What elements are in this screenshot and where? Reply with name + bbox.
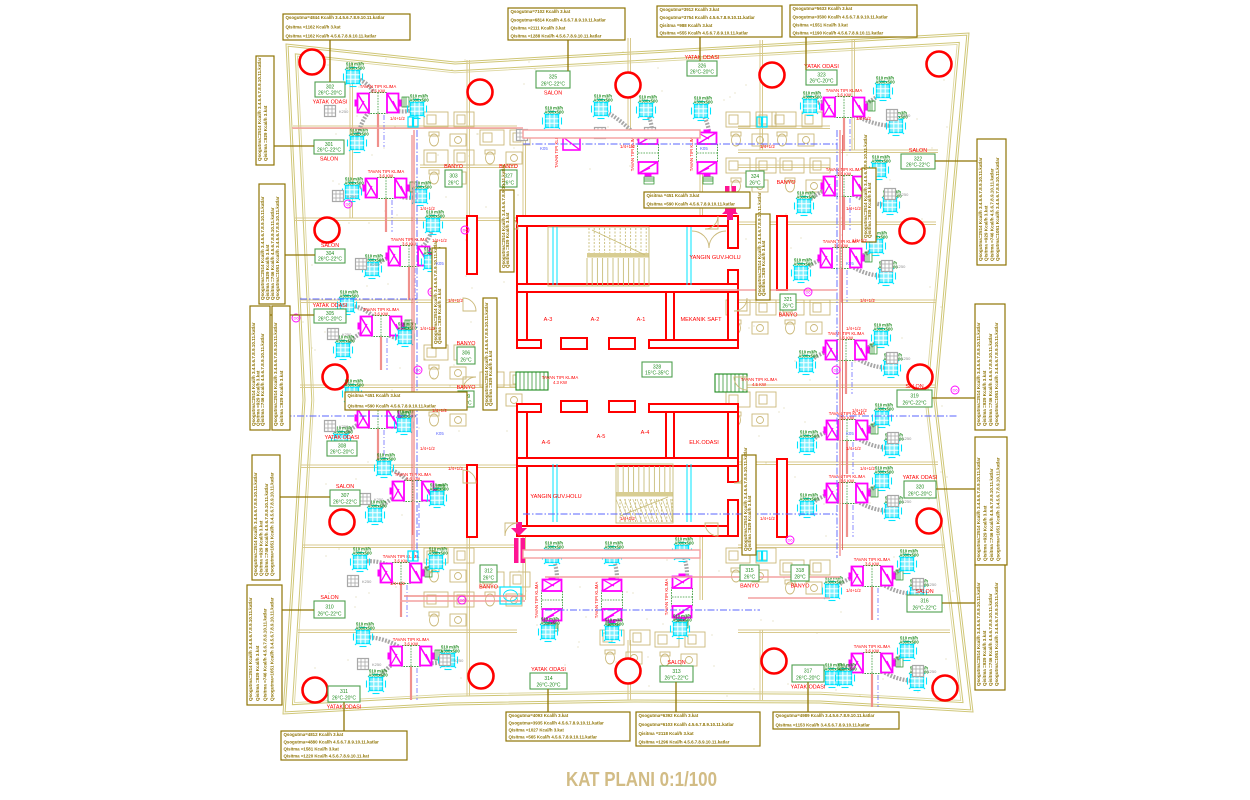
svg-text:1/4+1/2: 1/4+1/2 xyxy=(860,298,875,303)
svg-text:YATAK ODASI: YATAK ODASI xyxy=(804,64,839,70)
svg-text:A500x500: A500x500 xyxy=(344,383,364,388)
svg-text:26°C-20°C: 26°C-20°C xyxy=(908,492,932,498)
svg-text:1/4+1/2: 1/4+1/2 xyxy=(390,116,405,121)
svg-text:YATAK ODASI: YATAK ODASI xyxy=(325,435,360,441)
svg-text:TAVAN TIPI KLIMA: TAVAN TIPI KLIMA xyxy=(630,135,635,172)
svg-text:YATAK ODASI: YATAK ODASI xyxy=(313,303,348,309)
svg-text:SALON: SALON xyxy=(909,148,927,154)
svg-text:A-2: A-2 xyxy=(591,317,600,323)
svg-text:A-3: A-3 xyxy=(544,317,553,323)
svg-text:K05: K05 xyxy=(436,431,444,436)
svg-text:SALON: SALON xyxy=(915,589,933,595)
svg-text:Qisitma =929 Kcal/h 3.kat: Qisitma =929 Kcal/h 3.kat xyxy=(279,370,284,426)
svg-text:Qisitma =929 Kcal/h 3.kat: Qisitma =929 Kcal/h 3.kat xyxy=(761,240,766,296)
svg-text:K250: K250 xyxy=(339,109,349,114)
svg-text:1/4+1/2: 1/4+1/2 xyxy=(852,238,867,243)
svg-text:1/4+1/2: 1/4+1/2 xyxy=(432,408,447,413)
svg-text:Qsogutma=7102 Kcal/h 3.kat: Qsogutma=7102 Kcal/h 3.kat xyxy=(511,9,571,14)
svg-text:K250: K250 xyxy=(454,658,464,663)
svg-text:Qsogutma=2514 Kcal/h 3.4.5.6.7: Qsogutma=2514 Kcal/h 3.4.5.6.7.8.9.10.11… xyxy=(273,322,278,426)
svg-text:317: 317 xyxy=(804,668,813,674)
svg-text:Qisitma =746 Kcal/h 4.5.6.7.8.: Qisitma =746 Kcal/h 4.5.6.7.8.9.10.11.ka… xyxy=(989,168,994,261)
svg-text:K05: K05 xyxy=(436,261,444,266)
svg-text:Qsogutma=3500 Kcal/h 4.5.6.7.8: Qsogutma=3500 Kcal/h 4.5.6.7.8.9.10.11.k… xyxy=(793,14,889,19)
svg-text:307: 307 xyxy=(341,493,350,499)
svg-text:A500x500: A500x500 xyxy=(796,195,816,200)
svg-text:YATAK ODASI: YATAK ODASI xyxy=(685,55,720,61)
svg-text:1/4+1/2: 1/4+1/2 xyxy=(390,581,405,586)
svg-text:K250: K250 xyxy=(927,669,937,674)
svg-text:323: 323 xyxy=(817,72,826,78)
svg-text:26°C-20°C: 26°C-20°C xyxy=(690,70,714,76)
svg-text:K250: K250 xyxy=(362,579,372,584)
svg-text:4.5 KW: 4.5 KW xyxy=(752,382,767,387)
svg-text:Qsogutma=1051 Kcal/h 3.4.5.6.7: Qsogutma=1051 Kcal/h 3.4.5.6.7.8.9.10.11… xyxy=(995,157,1000,261)
svg-text:326: 326 xyxy=(698,63,707,69)
svg-text:K250: K250 xyxy=(374,497,384,502)
svg-text:Qsogutma=1051 Kcal/h 3.4.5.6.7: Qsogutma=1051 Kcal/h 3.4.5.6.7.8.9.10.11… xyxy=(995,457,1000,561)
svg-text:1/4+1/2: 1/4+1/2 xyxy=(860,466,875,471)
svg-text:Qisitma =1296 Kcal/h 4.5.6.7.8: Qisitma =1296 Kcal/h 4.5.6.7.8.9.10.11.k… xyxy=(639,740,730,745)
svg-text:26°C: 26°C xyxy=(749,181,761,187)
svg-text:Qsogutma=6392 Kcal/h 3.kat: Qsogutma=6392 Kcal/h 3.kat xyxy=(639,713,699,718)
svg-text:TAVAN TIPI KLIMA: TAVAN TIPI KLIMA xyxy=(534,582,539,619)
svg-text:A500x500: A500x500 xyxy=(875,80,895,85)
svg-text:Qisitma =929 Kcal/h 3.kat: Qisitma =929 Kcal/h 3.kat xyxy=(437,288,442,344)
svg-text:26°C-20°C: 26°C-20°C xyxy=(796,676,820,682)
svg-text:D6: D6 xyxy=(462,228,468,233)
svg-text:D6: D6 xyxy=(415,368,421,373)
svg-text:SALON: SALON xyxy=(667,660,685,666)
svg-text:A500x500: A500x500 xyxy=(412,185,432,190)
svg-text:26°C-20°C: 26°C-20°C xyxy=(330,450,354,456)
svg-text:306: 306 xyxy=(462,350,471,356)
svg-text:Qsogutma=3935 Kcal/h 4.5.6.7.8: Qsogutma=3935 Kcal/h 4.5.6.7.8.9.10.11.k… xyxy=(509,720,605,725)
svg-text:26°C-22°C: 26°C-22°C xyxy=(318,257,342,263)
svg-text:BANYO: BANYO xyxy=(777,180,796,186)
svg-text:Qsogutma=2514 Kcal/h 3.4.5.6.7: Qsogutma=2514 Kcal/h 3.4.5.6.7.8.9.10.11… xyxy=(978,157,983,261)
svg-text:1/4+1/2: 1/4+1/2 xyxy=(420,206,435,211)
svg-text:ELK.ODASI: ELK.ODASI xyxy=(689,440,719,446)
svg-text:A500x500: A500x500 xyxy=(376,457,396,462)
svg-text:A500x500: A500x500 xyxy=(339,294,359,299)
svg-text:28°C: 28°C xyxy=(794,575,806,581)
svg-text:K250: K250 xyxy=(370,262,380,267)
svg-text:A500x500: A500x500 xyxy=(874,407,894,412)
svg-text:A500x500: A500x500 xyxy=(368,673,388,678)
svg-text:316: 316 xyxy=(920,598,929,604)
svg-text:Qsogutma=3912 Kcal/h 3.kat: Qsogutma=3912 Kcal/h 3.kat xyxy=(660,7,720,12)
svg-text:Qisitma =746 Kcal/h 4.5.6.7.8.: Qisitma =746 Kcal/h 4.5.6.7.8.9.10.11.ka… xyxy=(988,593,993,686)
svg-text:K250: K250 xyxy=(927,582,937,587)
svg-text:3.6 KW: 3.6 KW xyxy=(404,642,419,647)
svg-text:BANYO: BANYO xyxy=(444,164,463,170)
svg-text:Qisitma =746 Kcal/h 4.5.6.7.8.: Qisitma =746 Kcal/h 4.5.6.7.8.9.10.11.ka… xyxy=(260,333,265,426)
svg-text:Qisitma =1162 Kcal/h 4.5.6.7.8: Qisitma =1162 Kcal/h 4.5.6.7.8.9.10.11.k… xyxy=(286,34,377,39)
svg-text:Qsogutma=1051 Kcal/h 3.4.5.6.7: Qsogutma=1051 Kcal/h 3.4.5.6.7.8.9.10.11… xyxy=(994,322,999,426)
svg-text:K05: K05 xyxy=(846,431,854,436)
svg-text:319: 319 xyxy=(910,393,919,399)
svg-text:1/4+1/2: 1/4+1/2 xyxy=(620,516,635,521)
svg-text:1/4+1/2: 1/4+1/2 xyxy=(448,298,463,303)
svg-text:TAVAN TIPI KLIMA: TAVAN TIPI KLIMA xyxy=(689,135,694,172)
svg-text:Qsogutma=2514 Kcal/h 3.4.5.6.7: Qsogutma=2514 Kcal/h 3.4.5.6.7.8.9.10.11… xyxy=(976,582,981,686)
svg-text:Qsogutma=1051 Kcal/h 3.4.5.6.7: Qsogutma=1051 Kcal/h 3.4.5.6.7.8.9.10.11… xyxy=(270,597,275,701)
svg-text:A500x500: A500x500 xyxy=(899,553,919,558)
svg-text:Qsogutma=4880 Kcal/h 4.5.6.7.8: Qsogutma=4880 Kcal/h 4.5.6.7.8.9.10.11.k… xyxy=(284,739,380,744)
svg-text:Qisitma =2111 Kcal/h 3.kat: Qisitma =2111 Kcal/h 3.kat xyxy=(511,26,566,31)
svg-text:Qsogutma=2514 Kcal/h 3.4.5.6.7: Qsogutma=2514 Kcal/h 3.4.5.6.7.8.9.10.11… xyxy=(253,472,258,576)
svg-text:328: 328 xyxy=(653,364,662,370)
svg-text:3.6 KW: 3.6 KW xyxy=(837,93,852,98)
svg-text:Qisitma =451 Kcal/h 3.kat: Qisitma =451 Kcal/h 3.kat xyxy=(647,193,700,198)
svg-text:D6: D6 xyxy=(952,388,958,393)
svg-text:A500x500: A500x500 xyxy=(409,98,429,103)
svg-text:Qisitma =1162 Kcal/h 3.kat: Qisitma =1162 Kcal/h 3.kat xyxy=(286,24,342,29)
svg-text:A500x500: A500x500 xyxy=(352,551,372,556)
svg-text:Qisitma =929 Kcal/h 3.kat: Qisitma =929 Kcal/h 3.kat xyxy=(747,495,752,551)
svg-text:SALON: SALON xyxy=(320,595,338,601)
svg-text:A-5: A-5 xyxy=(597,434,606,440)
svg-text:3.6 KW: 3.6 KW xyxy=(374,312,389,317)
svg-text:A500x500: A500x500 xyxy=(802,95,822,100)
svg-text:SALON: SALON xyxy=(321,243,339,249)
svg-text:BANYO: BANYO xyxy=(779,313,798,319)
svg-text:3.6 KW: 3.6 KW xyxy=(839,336,854,341)
svg-text:D6: D6 xyxy=(345,202,351,207)
svg-text:Qisitma =2118 Kcal/h 3.kat: Qisitma =2118 Kcal/h 3.kat xyxy=(639,731,695,736)
svg-text:K250: K250 xyxy=(896,264,906,269)
svg-text:Qsogutma=2514 Kcal/h 3.4.5.6.7: Qsogutma=2514 Kcal/h 3.4.5.6.7.8.9.10.11… xyxy=(248,597,253,701)
svg-text:26°C-22°C: 26°C-22°C xyxy=(541,82,565,88)
svg-text:1/4+1/2: 1/4+1/2 xyxy=(846,446,861,451)
svg-text:A500x500: A500x500 xyxy=(638,99,658,104)
svg-text:Qisitma =746 Kcal/h 4.5.6.7.8.: Qisitma =746 Kcal/h 4.5.6.7.8.9.10.11.ka… xyxy=(988,333,993,426)
svg-text:Qisitma =929 Kcal/h 3.kat: Qisitma =929 Kcal/h 3.kat xyxy=(982,630,987,686)
svg-text:Qisitma =929 Kcal/h 3.kat: Qisitma =929 Kcal/h 3.kat xyxy=(263,105,268,161)
svg-text:26°C-20°C: 26°C-20°C xyxy=(332,696,356,702)
svg-text:310: 310 xyxy=(325,604,334,610)
svg-text:K250: K250 xyxy=(342,332,352,337)
svg-text:313: 313 xyxy=(672,669,681,675)
svg-text:BANYO: BANYO xyxy=(457,385,476,391)
svg-text:A500x500: A500x500 xyxy=(674,541,694,546)
svg-text:K05: K05 xyxy=(700,146,708,151)
svg-text:SALON: SALON xyxy=(320,157,338,163)
svg-text:26°C-20°C: 26°C-20°C xyxy=(536,683,560,689)
svg-text:A500x500: A500x500 xyxy=(693,100,713,105)
svg-text:Qisitma =929 Kcal/h 3.kat: Qisitma =929 Kcal/h 3.kat xyxy=(984,205,989,261)
svg-text:1/4+1/2: 1/4+1/2 xyxy=(448,466,463,471)
svg-text:1/4+1/2: 1/4+1/2 xyxy=(620,144,635,149)
svg-text:321: 321 xyxy=(784,297,793,303)
svg-text:303: 303 xyxy=(449,173,458,179)
svg-text:D6: D6 xyxy=(293,316,299,321)
svg-text:322: 322 xyxy=(914,156,923,162)
svg-text:BANYO: BANYO xyxy=(479,585,498,591)
svg-text:A500x500: A500x500 xyxy=(345,66,365,71)
svg-text:3.6 KW: 3.6 KW xyxy=(379,174,394,179)
svg-text:3.6 KW: 3.6 KW xyxy=(394,559,409,564)
svg-text:3.6 KW: 3.6 KW xyxy=(834,244,849,249)
svg-text:Qisitma =451 Kcal/h 3.kat: Qisitma =451 Kcal/h 3.kat xyxy=(348,393,401,398)
svg-text:A500x500: A500x500 xyxy=(593,98,613,103)
svg-text:A500x500: A500x500 xyxy=(874,470,894,475)
svg-text:1/4+1/2: 1/4+1/2 xyxy=(760,144,775,149)
svg-text:Qsogutma=4844 Kcal/h 3.4.5.6.7: Qsogutma=4844 Kcal/h 3.4.5.6.7.8.9.10.11… xyxy=(286,15,385,20)
svg-text:Qisitma =988 Kcal/h 3.kat: Qisitma =988 Kcal/h 3.kat xyxy=(660,23,713,28)
svg-text:A500x500: A500x500 xyxy=(871,159,891,164)
svg-text:26°C-20°C: 26°C-20°C xyxy=(318,91,342,97)
svg-text:1/4+1/2: 1/4+1/2 xyxy=(852,408,867,413)
svg-text:311: 311 xyxy=(340,689,348,695)
svg-text:Qsogutma=2514 Kcal/h 3.4.5.6.7: Qsogutma=2514 Kcal/h 3.4.5.6.7.8.9.10.11… xyxy=(257,57,262,161)
svg-text:BANYO: BANYO xyxy=(740,584,759,590)
svg-text:Qisitma =929 Kcal/h 3.kat: Qisitma =929 Kcal/h 3.kat xyxy=(488,350,493,406)
svg-text:318: 318 xyxy=(796,568,805,574)
svg-text:Qsogutma=5633 Kcal/h 3.kat: Qsogutma=5633 Kcal/h 3.kat xyxy=(793,6,853,11)
svg-text:YANGIN GUV.HOLU: YANGIN GUV.HOLU xyxy=(530,494,581,500)
svg-text:Qsogutma=1051 Kcal/h 3.4.5.6.7: Qsogutma=1051 Kcal/h 3.4.5.6.7.8.9.10.11… xyxy=(269,472,274,576)
svg-text:A500x500: A500x500 xyxy=(544,545,564,550)
svg-text:26°C: 26°C xyxy=(448,181,460,187)
svg-text:1/4+1/2: 1/4+1/2 xyxy=(420,446,435,451)
svg-text:A500x500: A500x500 xyxy=(798,354,818,359)
svg-text:K250: K250 xyxy=(899,192,909,197)
svg-text:26°C-20°C: 26°C-20°C xyxy=(318,317,342,323)
svg-text:TAVAN TIPI KLIMA: TAVAN TIPI KLIMA xyxy=(594,582,599,619)
svg-text:BANYO: BANYO xyxy=(457,341,476,347)
svg-text:26°C-22°C: 26°C-22°C xyxy=(902,401,926,407)
svg-text:26°C-22°C: 26°C-22°C xyxy=(317,148,341,154)
svg-text:Qsogutma=6103 Kcal/h 4.5.6.7.8: Qsogutma=6103 Kcal/h 4.5.6.7.8.9.10.11.k… xyxy=(639,722,735,727)
svg-text:Qisitma =929 Kcal/h 3.kat: Qisitma =929 Kcal/h 3.kat xyxy=(982,370,987,426)
svg-text:1/4+1/2: 1/4+1/2 xyxy=(846,206,861,211)
svg-text:Qisitma =1027 Kcal/h 3.kat: Qisitma =1027 Kcal/h 3.kat xyxy=(509,728,565,733)
svg-text:Qsogutma=4093 Kcal/h 3.kat: Qsogutma=4093 Kcal/h 3.kat xyxy=(509,713,569,718)
svg-text:D6: D6 xyxy=(805,290,811,295)
svg-text:A500x500: A500x500 xyxy=(899,640,919,645)
svg-text:15°C-35°C: 15°C-35°C xyxy=(645,371,669,377)
svg-text:Qisitma =1288 Kcal/h 4.5.6.7.8: Qisitma =1288 Kcal/h 4.5.6.7.8.9.10.11.k… xyxy=(511,34,602,39)
svg-text:KAT PLANI 0:1/100: KAT PLANI 0:1/100 xyxy=(566,769,717,791)
svg-text:K05: K05 xyxy=(846,261,854,266)
svg-text:26°C: 26°C xyxy=(782,304,794,310)
svg-text:1/4+1/2: 1/4+1/2 xyxy=(432,238,447,243)
svg-text:1/4+1/2: 1/4+1/2 xyxy=(420,326,435,331)
svg-text:26°C-22°C: 26°C-22°C xyxy=(333,500,357,506)
svg-text:A500x500: A500x500 xyxy=(349,132,369,137)
svg-text:Qisitma =1581 Kcal/h 3.kat: Qisitma =1581 Kcal/h 3.kat xyxy=(284,747,340,752)
svg-text:3.6 KW: 3.6 KW xyxy=(371,89,386,94)
svg-text:26°C: 26°C xyxy=(744,575,756,581)
svg-text:A500x500: A500x500 xyxy=(824,580,844,585)
svg-text:A500x500: A500x500 xyxy=(333,430,353,435)
svg-text:26°C-22°C: 26°C-22°C xyxy=(664,676,688,682)
svg-text:Qisitma =590 Kcal/h 4.5.6.7.8.: Qisitma =590 Kcal/h 4.5.6.7.8.9.10.11.ka… xyxy=(348,404,437,409)
svg-text:26°C-22°C: 26°C-22°C xyxy=(317,612,341,618)
svg-text:Qsogutma=4989 Kcal/h 3.4.5.6.7: Qsogutma=4989 Kcal/h 3.4.5.6.7.8.9.10.11… xyxy=(776,713,875,718)
svg-text:A500x500: A500x500 xyxy=(540,621,560,626)
svg-text:Qisitma =1551 Kcal/h 3.kat: Qisitma =1551 Kcal/h 3.kat xyxy=(793,23,849,28)
svg-text:A500x500: A500x500 xyxy=(344,181,364,186)
svg-text:3.6 KW: 3.6 KW xyxy=(865,562,880,567)
svg-text:D6: D6 xyxy=(833,368,839,373)
svg-text:1/4+1/2: 1/4+1/2 xyxy=(856,116,871,121)
svg-text:Qisitma =746 Kcal/h 4.5.6.7.8.: Qisitma =746 Kcal/h 4.5.6.7.8.9.10.11.ka… xyxy=(264,483,269,576)
svg-text:1/4+1/2: 1/4+1/2 xyxy=(846,588,861,593)
svg-text:YATAK ODASI: YATAK ODASI xyxy=(313,100,348,106)
svg-text:A500x500: A500x500 xyxy=(604,622,624,627)
svg-text:324: 324 xyxy=(751,174,760,180)
svg-text:26°C: 26°C xyxy=(483,576,495,582)
svg-text:YANGIN GUV.HOLU: YANGIN GUV.HOLU xyxy=(689,255,740,261)
svg-text:SALON: SALON xyxy=(905,384,923,390)
svg-text:BANYO: BANYO xyxy=(791,584,810,590)
svg-text:SALON: SALON xyxy=(544,91,562,97)
svg-text:Qisitma =555 Kcal/h 4.5.6.7.8.: Qisitma =555 Kcal/h 4.5.6.7.8.9.10.11.ka… xyxy=(660,31,749,36)
svg-text:D6: D6 xyxy=(459,598,465,603)
svg-text:A500x500: A500x500 xyxy=(428,551,448,556)
svg-text:K250: K250 xyxy=(901,113,911,118)
svg-text:D6: D6 xyxy=(787,538,793,543)
svg-text:Qisitma =929 Kcal/h 3.kat: Qisitma =929 Kcal/h 3.kat xyxy=(255,645,260,701)
svg-text:1/4+1/2: 1/4+1/2 xyxy=(760,516,775,521)
svg-text:26°C-22°C: 26°C-22°C xyxy=(912,606,936,612)
svg-text:Qisitma =929 Kcal/h 3.kat: Qisitma =929 Kcal/h 3.kat xyxy=(982,505,987,561)
svg-text:A500x500: A500x500 xyxy=(793,262,813,267)
svg-text:A500x500: A500x500 xyxy=(355,626,375,631)
svg-text:Qsogutma=2514 Kcal/h 3.4.5.6.7: Qsogutma=2514 Kcal/h 3.4.5.6.7.8.9.10.11… xyxy=(976,457,981,561)
svg-text:Qisitma =565 Kcal/h 4.5.6.7.8.: Qisitma =565 Kcal/h 4.5.6.7.8.9.10.11.ka… xyxy=(509,735,598,740)
svg-text:A500x500: A500x500 xyxy=(837,667,857,672)
svg-text:A500x500: A500x500 xyxy=(544,110,564,115)
svg-text:K250: K250 xyxy=(901,356,911,361)
svg-text:YATAK ODASI: YATAK ODASI xyxy=(531,667,566,673)
svg-text:A-4: A-4 xyxy=(641,430,650,436)
svg-text:Qisitma =929 Kcal/h 3.kat: Qisitma =929 Kcal/h 3.kat xyxy=(867,182,872,238)
svg-text:A500x500: A500x500 xyxy=(799,434,819,439)
svg-text:A500x500: A500x500 xyxy=(604,545,624,550)
svg-text:K05: K05 xyxy=(540,146,548,151)
svg-text:3.6 KW: 3.6 KW xyxy=(865,649,880,654)
svg-text:Qsogutma=4812 Kcal/h 3.kat: Qsogutma=4812 Kcal/h 3.kat xyxy=(284,732,344,737)
svg-text:26°C: 26°C xyxy=(460,358,472,364)
svg-text:320: 320 xyxy=(916,484,925,490)
svg-text:A500x500: A500x500 xyxy=(429,487,449,492)
svg-text:K250: K250 xyxy=(347,194,357,199)
svg-text:Qsogutma=2514 Kcal/h 3.4.5.6.7: Qsogutma=2514 Kcal/h 3.4.5.6.7.8.9.10.11… xyxy=(976,322,981,426)
svg-text:MEKANIK SAFT: MEKANIK SAFT xyxy=(680,317,722,323)
svg-text:SALON: SALON xyxy=(336,484,354,490)
svg-text:Qisitma =929 Kcal/h 3.kat: Qisitma =929 Kcal/h 3.kat xyxy=(505,212,510,268)
svg-text:K250: K250 xyxy=(902,499,912,504)
svg-text:312: 312 xyxy=(484,568,493,574)
svg-text:K250: K250 xyxy=(372,662,382,667)
svg-text:A500x500: A500x500 xyxy=(425,214,445,219)
svg-text:26°C-22°C: 26°C-22°C xyxy=(906,163,930,169)
svg-text:A-6: A-6 xyxy=(542,440,551,446)
svg-text:302: 302 xyxy=(326,84,335,90)
svg-text:K250: K250 xyxy=(339,424,349,429)
svg-text:Qisitma =1220 Kcal/h 4.5.6.7.8: Qisitma =1220 Kcal/h 4.5.6.7.8.9.10.11.k… xyxy=(284,754,370,759)
svg-text:Qisitma =1153 Kcal/h 3.4.5.6.7: Qisitma =1153 Kcal/h 3.4.5.6.7.8.9.10.11… xyxy=(776,723,871,728)
svg-text:26°C-20°C: 26°C-20°C xyxy=(809,79,833,85)
svg-text:Qsogutma=3754 Kcal/h 4.5.6.7.8: Qsogutma=3754 Kcal/h 4.5.6.7.8.9.10.11.k… xyxy=(660,15,756,20)
svg-text:314: 314 xyxy=(544,676,553,682)
svg-text:Qsogutma=6814 Kcal/h 4.5.6.7.8: Qsogutma=6814 Kcal/h 4.5.6.7.8.9.10.11.k… xyxy=(511,17,607,22)
svg-text:K250: K250 xyxy=(902,436,912,441)
svg-text:YATAK ODASI: YATAK ODASI xyxy=(903,475,938,481)
svg-text:Qisitma =746 Kcal/h 4.5.6.7.8.: Qisitma =746 Kcal/h 4.5.6.7.8.9.10.11.ka… xyxy=(262,608,267,701)
svg-text:325: 325 xyxy=(549,74,558,80)
svg-text:308: 308 xyxy=(338,443,347,449)
svg-text:Qsogutma=1051 Kcal/h 3.4.5.6.7: Qsogutma=1051 Kcal/h 3.4.5.6.7.8.9.10.11… xyxy=(275,196,280,300)
svg-text:Qisitma =1190 Kcal/h 4.5.6.7.8: Qisitma =1190 Kcal/h 4.5.6.7.8.9.10.11.k… xyxy=(793,31,884,36)
svg-text:A500x500: A500x500 xyxy=(799,497,819,502)
svg-text:Qisitma =590 Kcal/h 4.5.6.7.8.: Qisitma =590 Kcal/h 4.5.6.7.8.9.10.11.ka… xyxy=(647,202,736,207)
svg-text:Qisitma =929 Kcal/h 3.kat: Qisitma =929 Kcal/h 3.kat xyxy=(258,520,263,576)
svg-text:4.3 KW: 4.3 KW xyxy=(553,380,568,385)
svg-text:Qsogutma=1051 Kcal/h 3.4.5.6.7: Qsogutma=1051 Kcal/h 3.4.5.6.7.8.9.10.11… xyxy=(994,582,999,686)
svg-text:1/4+1/2: 1/4+1/2 xyxy=(846,326,861,331)
svg-text:Qisitma =746 Kcal/h 4.5.6.7.8.: Qisitma =746 Kcal/h 4.5.6.7.8.9.10.11.ka… xyxy=(989,468,994,561)
svg-text:315: 315 xyxy=(745,568,754,574)
svg-text:A500x500: A500x500 xyxy=(873,327,893,332)
svg-text:A500x500: A500x500 xyxy=(672,618,692,623)
svg-text:A-1: A-1 xyxy=(637,317,646,323)
svg-text:A500x500: A500x500 xyxy=(440,649,460,654)
